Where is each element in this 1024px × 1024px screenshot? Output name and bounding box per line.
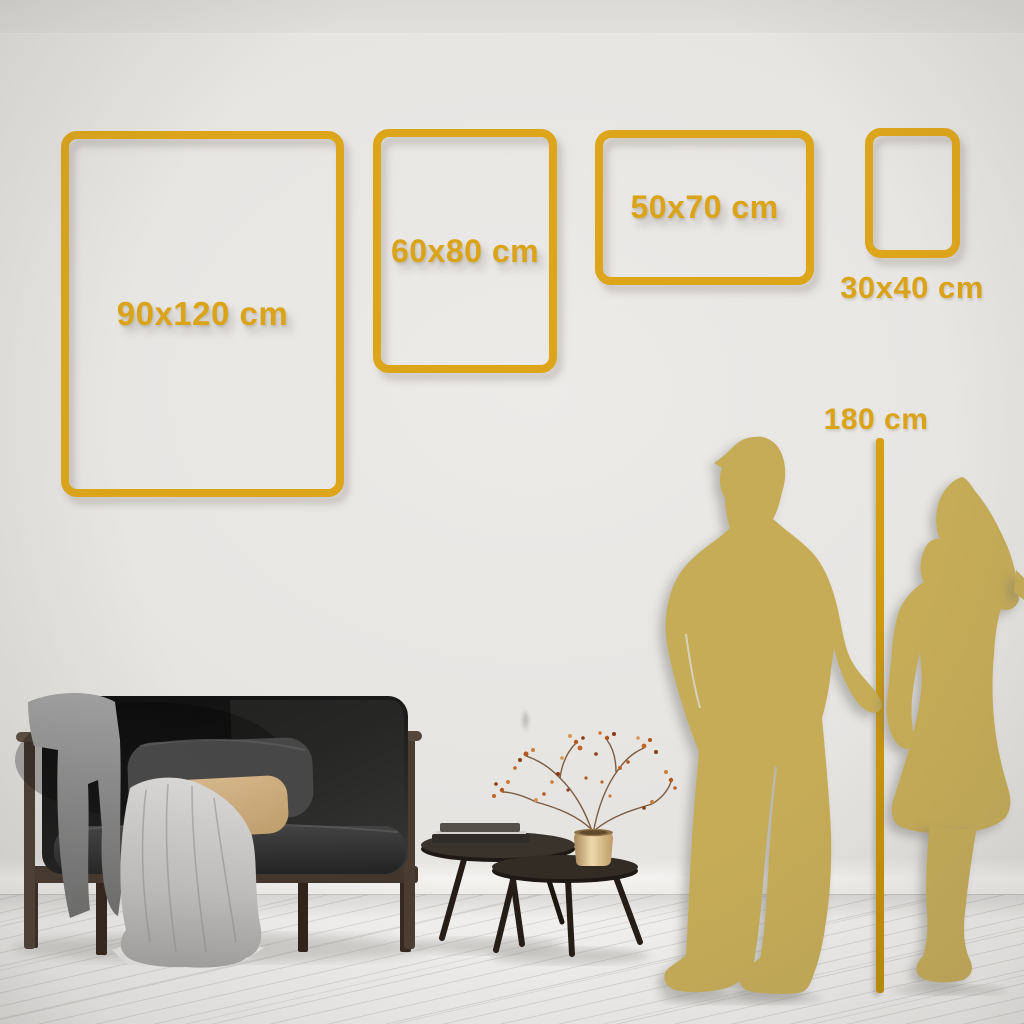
frame-90x120: 90x120 cm	[61, 131, 344, 497]
frame-50x70-label: 50x70 cm	[630, 189, 778, 226]
frame-50x70: 50x70 cm	[595, 130, 814, 285]
woman-silhouette	[887, 477, 1024, 982]
frame-30x40-label: 30x40 cm	[826, 270, 998, 306]
frame-90x120-label: 90x120 cm	[117, 295, 288, 333]
frame-30x40	[865, 128, 960, 258]
gold-vase	[574, 829, 613, 866]
man-silhouette	[664, 437, 881, 994]
man-feet-shadow	[658, 992, 822, 1004]
woman-leg	[916, 822, 977, 982]
ceiling-line	[0, 0, 1024, 34]
sofa	[0, 680, 440, 980]
frame-60x80: 60x80 cm	[373, 129, 557, 373]
woman-feet-shadow	[894, 985, 1006, 995]
frame-60x80-label: 60x80 cm	[391, 233, 539, 270]
couple-silhouettes	[630, 420, 1024, 1020]
books-stack	[432, 823, 530, 843]
size-guide-scene: 90x120 cm 60x80 cm 50x70 cm 30x40 cm 180…	[0, 0, 1024, 1024]
table-tall	[421, 832, 575, 944]
